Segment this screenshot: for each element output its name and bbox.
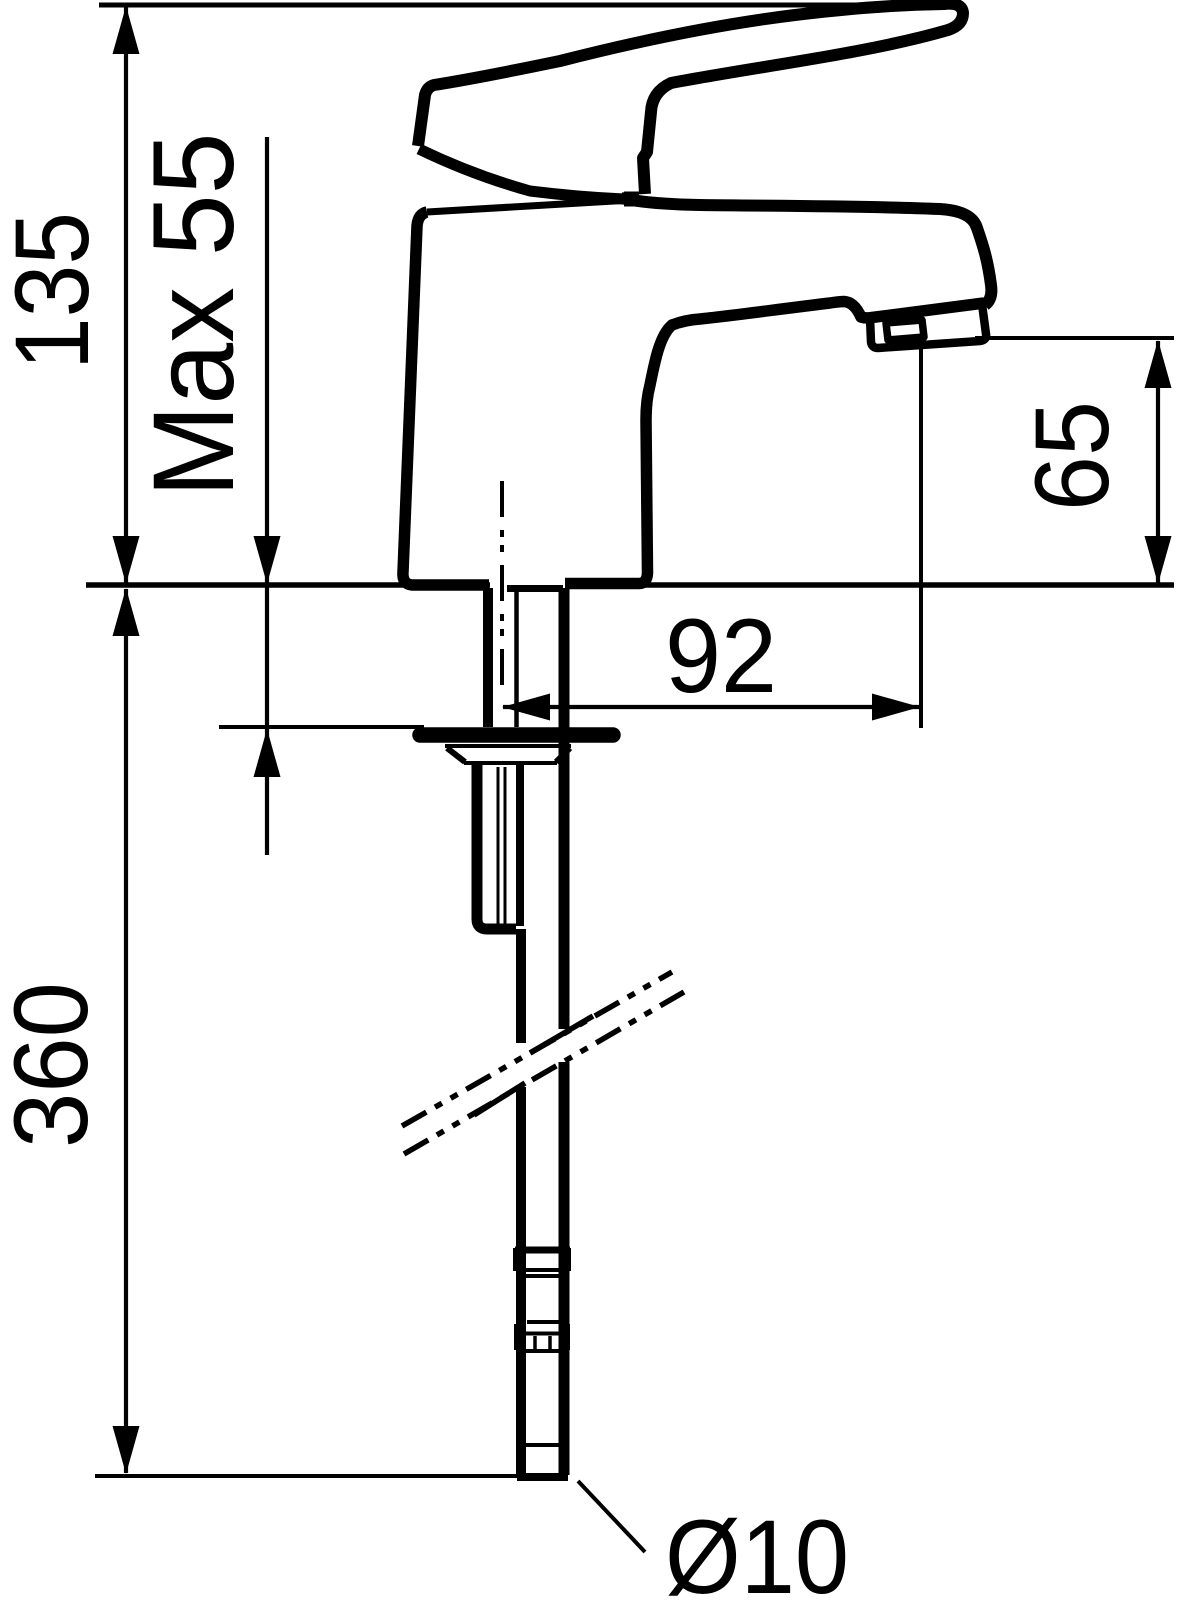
svg-text:Ø10: Ø10 <box>665 1499 849 1616</box>
svg-text:92: 92 <box>665 598 777 715</box>
svg-text:Max 55: Max 55 <box>130 133 258 498</box>
svg-text:360: 360 <box>0 982 110 1148</box>
svg-text:65: 65 <box>1014 401 1131 511</box>
svg-text:135: 135 <box>0 212 111 370</box>
